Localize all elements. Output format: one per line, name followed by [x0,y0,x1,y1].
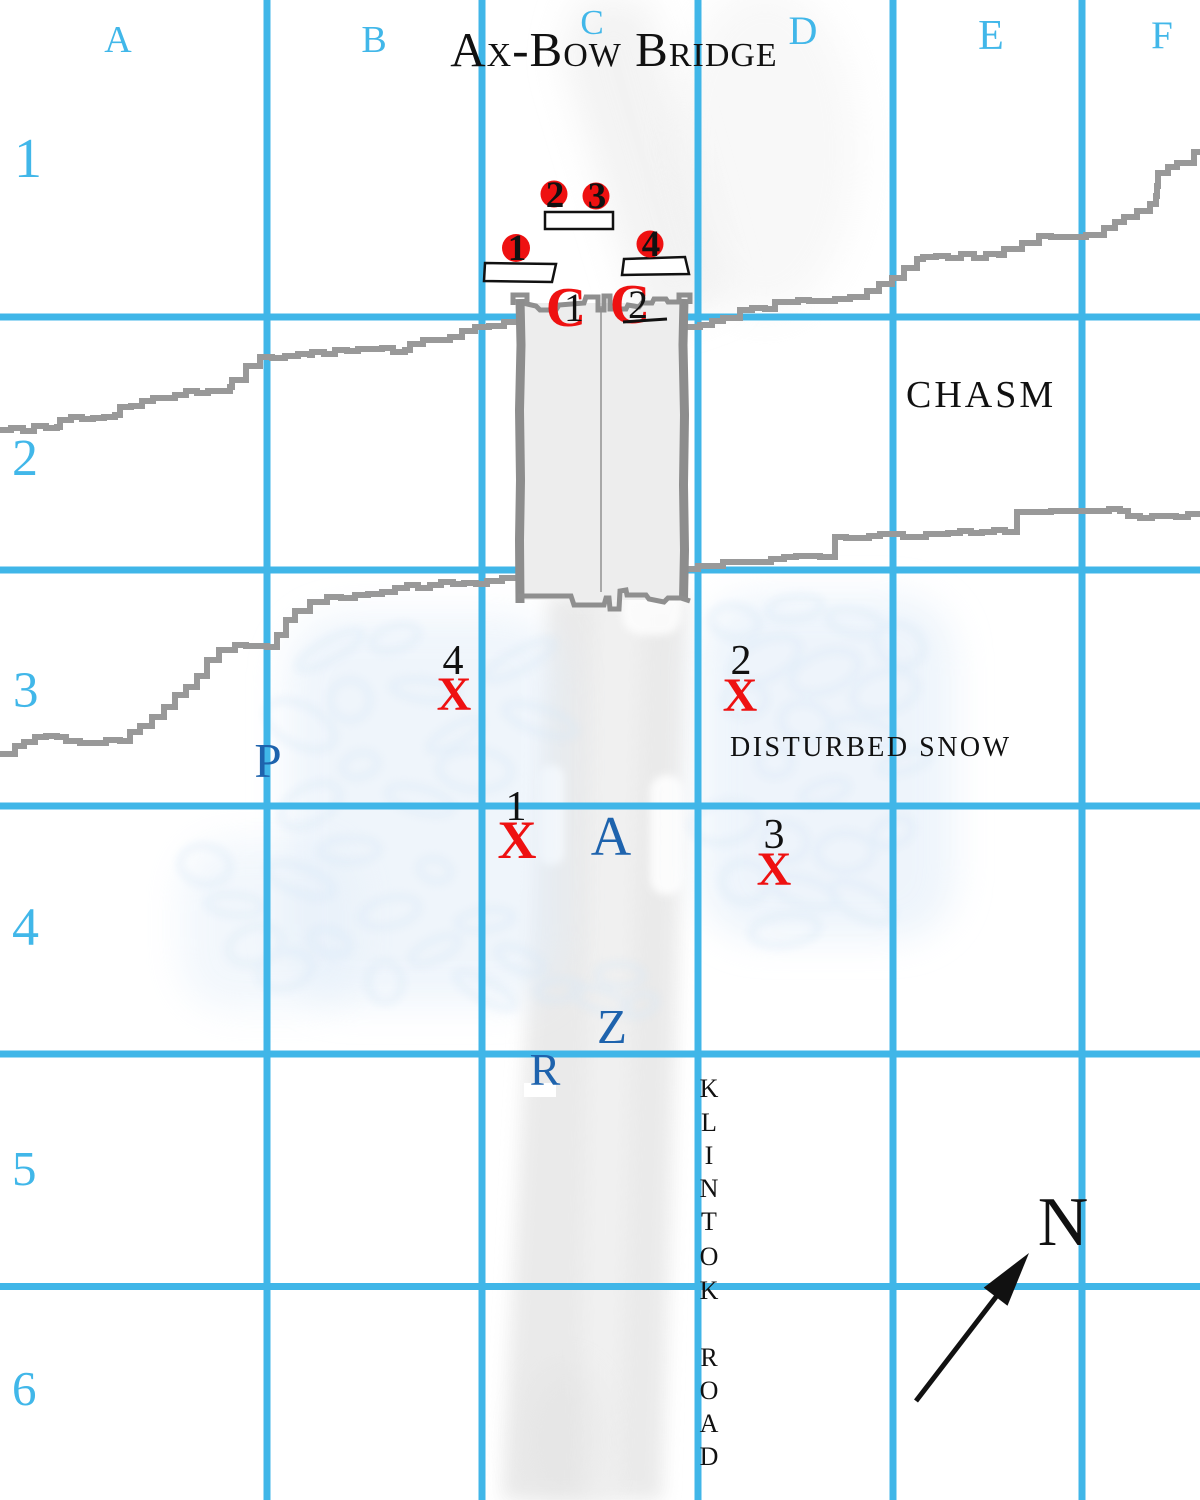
svg-text:5: 5 [12,1141,37,1196]
svg-text:D: D [700,1442,719,1471]
svg-text:N: N [1038,1184,1089,1261]
svg-text:T: T [701,1207,717,1236]
svg-text:B: B [361,19,386,61]
svg-text:A: A [700,1409,719,1438]
svg-text:O: O [700,1376,719,1405]
svg-text:A: A [104,19,132,61]
svg-text:K: K [700,1276,719,1305]
svg-text:1: 1 [14,128,42,190]
svg-text:F: F [1151,14,1173,57]
svg-text:L: L [701,1108,717,1137]
svg-text:R: R [700,1343,718,1372]
svg-text:3: 3 [588,176,607,217]
svg-text:P: P [254,733,281,788]
svg-text:2: 2 [12,430,38,487]
svg-text:X: X [757,843,792,896]
svg-text:4: 4 [12,897,39,957]
svg-text:A: A [591,806,632,868]
svg-text:Ax-Bow Bridge: Ax-Bow Bridge [450,22,777,77]
svg-text:X: X [723,669,758,722]
svg-text:O: O [700,1242,719,1271]
svg-text:4: 4 [642,224,661,265]
svg-text:R: R [530,1044,561,1095]
svg-text:6: 6 [12,1361,37,1416]
svg-text:I: I [705,1141,714,1170]
svg-text:N: N [700,1174,719,1203]
svg-text:2: 2 [546,175,565,216]
svg-text:3: 3 [13,663,39,719]
svg-text:K: K [700,1074,719,1103]
svg-text:E: E [978,13,1004,59]
svg-text:Z: Z [597,999,627,1054]
svg-text:1: 1 [564,285,584,330]
svg-text:X: X [498,810,537,870]
svg-text:D: D [789,8,818,53]
svg-text:1: 1 [508,228,527,269]
svg-text:X: X [437,668,472,721]
svg-text:CHASM: CHASM [906,374,1056,416]
svg-text:DISTURBED SNOW: DISTURBED SNOW [730,732,1012,763]
